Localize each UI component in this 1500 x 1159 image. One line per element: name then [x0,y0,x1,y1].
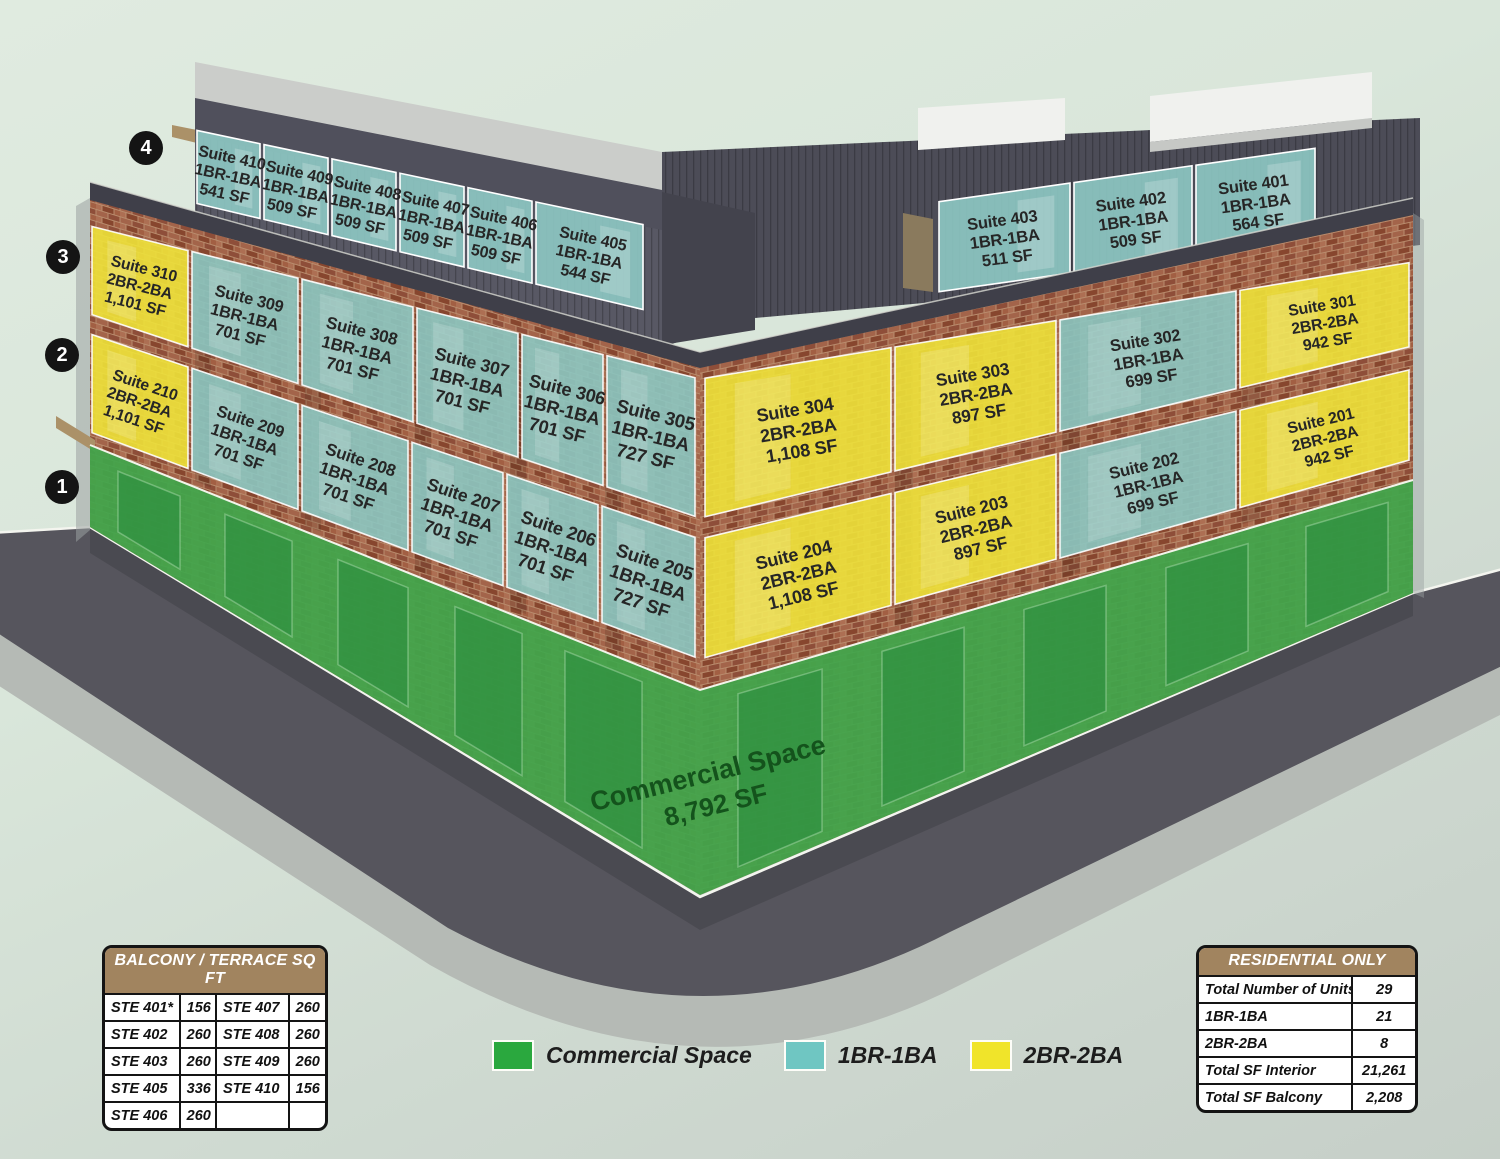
table-cell-value: 260 [289,995,325,1021]
table-cell-value: 156 [289,1075,325,1102]
table-cell-label: Total SF Balcony [1199,1084,1352,1110]
table-cell-value: 8 [1352,1030,1415,1057]
suite-label-304: Suite 3042BR-2BA1,108 SF [755,394,842,467]
table-cell-value: 260 [180,1102,216,1128]
table-row: STE 403260STE 409260 [105,1048,325,1075]
legend-swatch [970,1040,1012,1071]
table-row: Total SF Interior21,261 [1199,1057,1415,1084]
table-row: 1BR-1BA21 [1199,1003,1415,1030]
table-row: 2BR-2BA8 [1199,1030,1415,1057]
legend-item-1: 1BR-1BA [784,1040,938,1071]
table-row: STE 406260 [105,1102,325,1128]
legend-label: 1BR-1BA [838,1042,938,1069]
floor4-corner-face [662,192,755,345]
table-cell-label: STE 409 [216,1048,289,1075]
legend-swatch [492,1040,534,1071]
table-cell-label: STE 410 [216,1075,289,1102]
table-row: Total Number of Units29 [1199,977,1415,1003]
table-cell-label: Total SF Interior [1199,1057,1352,1084]
table-cell-label: 1BR-1BA [1199,1003,1352,1030]
table-cell-label: Total Number of Units [1199,977,1352,1003]
floor-badge-1: 1 [45,470,79,504]
table-cell-label: STE 408 [216,1021,289,1048]
table-cell-label: STE 407 [216,995,289,1021]
table-cell-value: 21,261 [1352,1057,1415,1084]
table-cell-label: 2BR-2BA [1199,1030,1352,1057]
table-row: STE 402260STE 408260 [105,1021,325,1048]
table-cell-value: 260 [180,1048,216,1075]
table-cell-label: STE 406 [105,1102,180,1128]
floor-badge-2: 2 [45,338,79,372]
balcony-terrace-table: BALCONY / TERRACE SQ FT STE 401*156STE 4… [102,945,328,1131]
building-diagram-page: Suite 3102BR-2BA1,101 SFSuite 3091BR-1BA… [0,0,1500,1159]
balcony-ledge-left [172,125,197,143]
floor-badge-4: 4 [129,131,163,165]
table-cell-label [216,1102,289,1128]
table-cell-label: STE 405 [105,1075,180,1102]
legend-swatch [784,1040,826,1071]
wall-end-right [1413,213,1424,598]
legend-label: 2BR-2BA [1024,1042,1124,1069]
legend-item-2: 2BR-2BA [970,1040,1124,1071]
table-row: STE 405336STE 410156 [105,1075,325,1102]
table-cell-label: STE 402 [105,1021,180,1048]
table-cell-value: 336 [180,1075,216,1102]
table-cell-value [289,1102,325,1128]
legend: Commercial Space1BR-1BA2BR-2BA [492,1040,1123,1071]
table-cell-value: 156 [180,995,216,1021]
balcony-table-title: BALCONY / TERRACE SQ FT [105,948,325,995]
table-cell-value: 260 [289,1021,325,1048]
table-cell-label: STE 401* [105,995,180,1021]
floor-badge-3: 3 [46,240,80,274]
roof-pillar [903,213,933,292]
table-row: Total SF Balcony2,208 [1199,1084,1415,1110]
table-cell-value: 29 [1352,977,1415,1003]
table-cell-value: 2,208 [1352,1084,1415,1110]
legend-label: Commercial Space [546,1042,752,1069]
residential-table-title: RESIDENTIAL ONLY [1199,948,1415,977]
legend-item-0: Commercial Space [492,1040,752,1071]
residential-only-table: RESIDENTIAL ONLY Total Number of Units29… [1196,945,1418,1113]
table-cell-value: 260 [180,1021,216,1048]
table-cell-value: 260 [289,1048,325,1075]
table-cell-value: 21 [1352,1003,1415,1030]
table-row: STE 401*156STE 407260 [105,995,325,1021]
table-cell-label: STE 403 [105,1048,180,1075]
